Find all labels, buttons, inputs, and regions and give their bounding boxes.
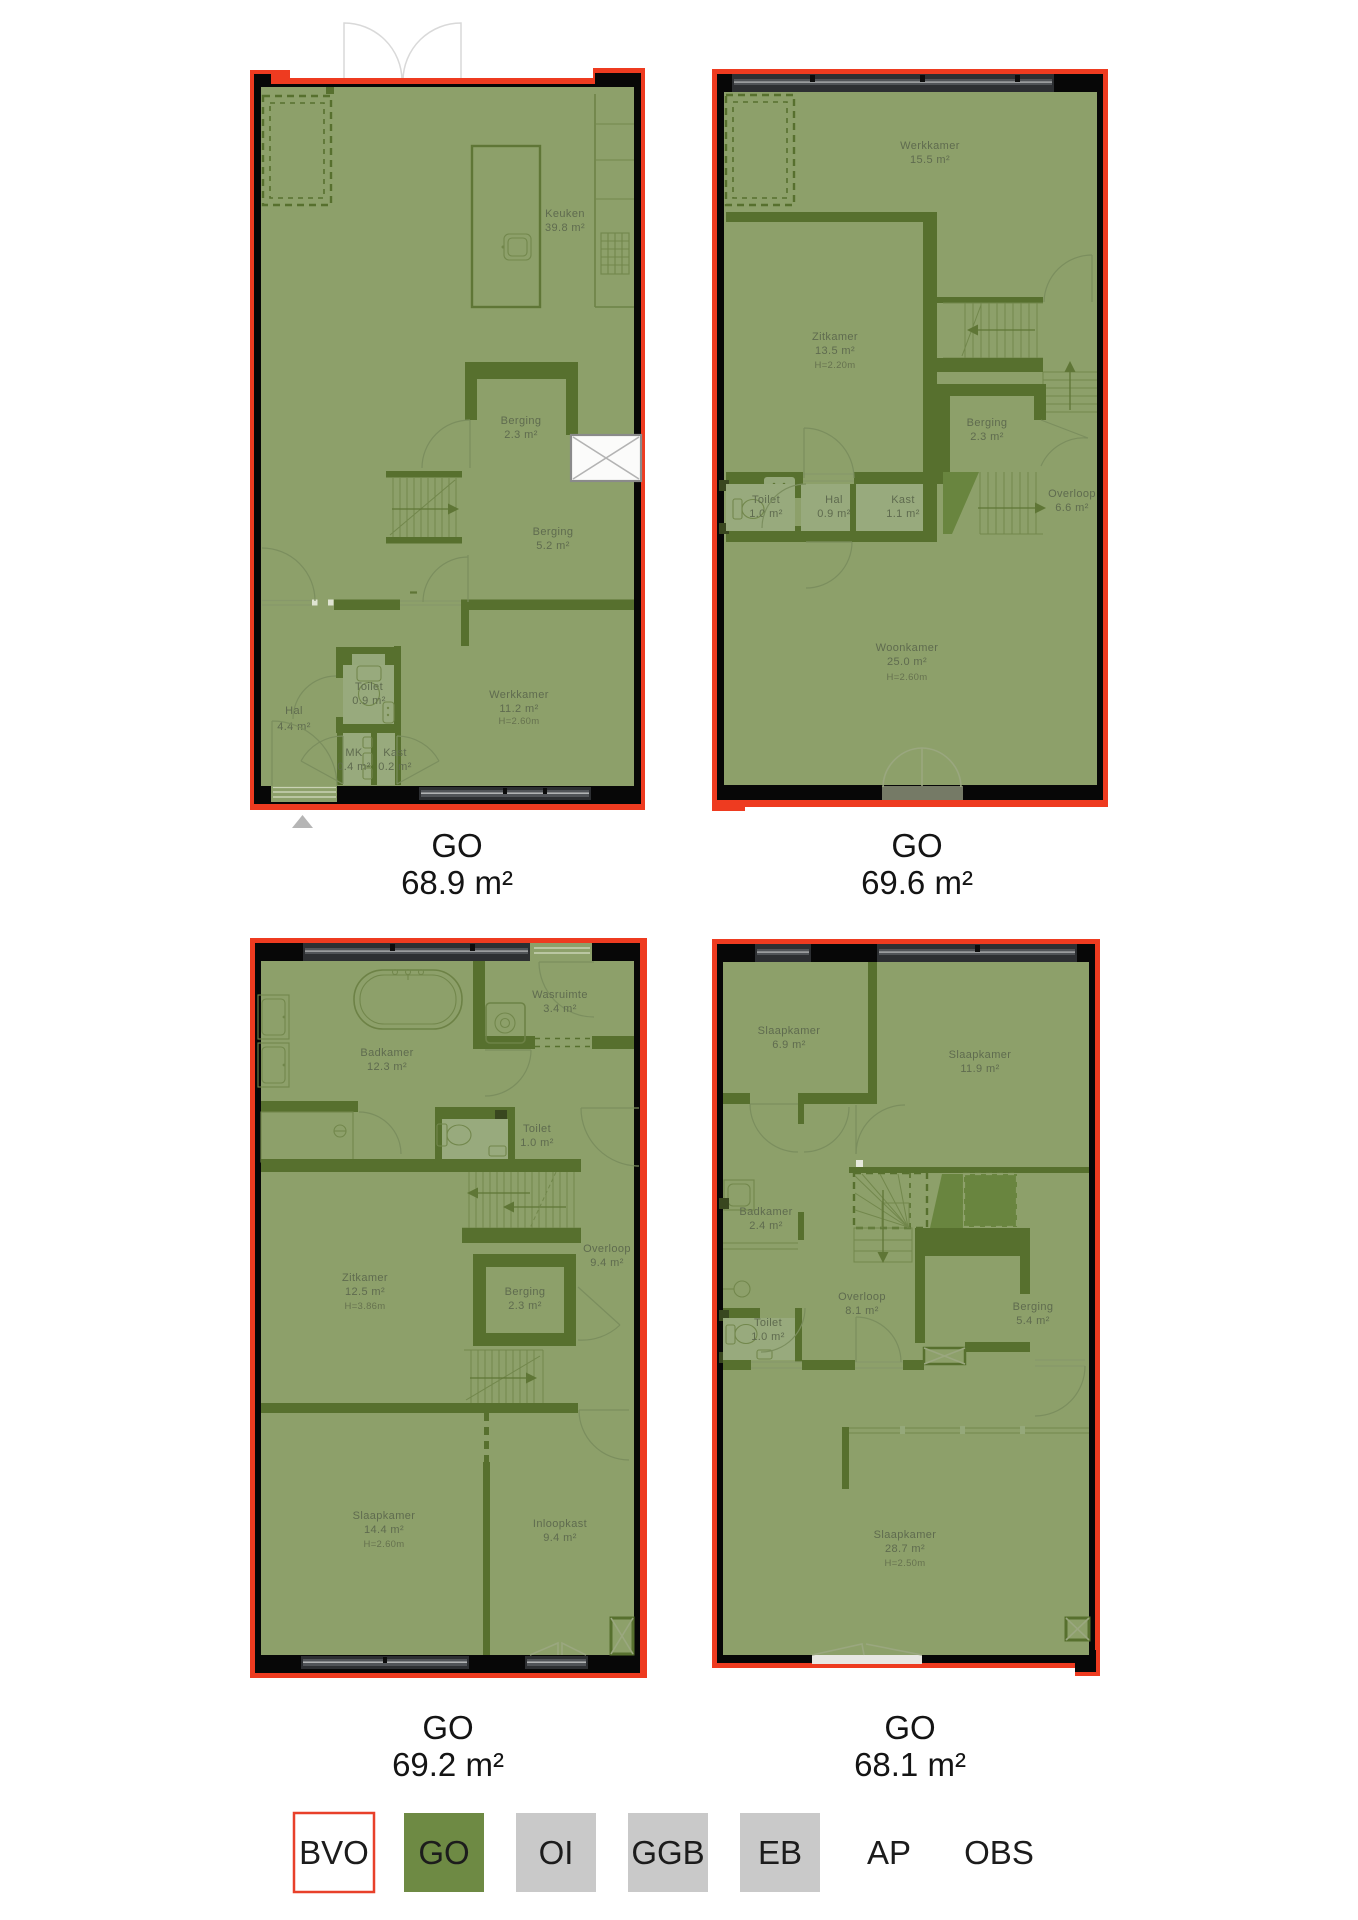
svg-text:Toilet: Toilet: [754, 1317, 782, 1329]
svg-text:39.8 m²: 39.8 m²: [545, 222, 585, 234]
svg-text:GO: GO: [431, 827, 482, 864]
svg-text:Toilet: Toilet: [523, 1123, 551, 1135]
svg-text:11.2 m²: 11.2 m²: [499, 703, 538, 715]
svg-text:Woonkamer: Woonkamer: [876, 642, 939, 654]
svg-text:Berging: Berging: [967, 417, 1008, 429]
svg-text:Berging: Berging: [505, 1286, 546, 1298]
svg-text:OBS: OBS: [964, 1834, 1034, 1871]
svg-text:Overloop: Overloop: [838, 1291, 886, 1303]
svg-text:0.4 m²: 0.4 m²: [337, 761, 371, 773]
svg-text:25.0 m²: 25.0 m²: [887, 656, 927, 668]
svg-text:Badkamer: Badkamer: [360, 1047, 413, 1059]
svg-text:Berging: Berging: [1013, 1301, 1054, 1313]
svg-text:GO: GO: [884, 1709, 935, 1746]
svg-text:12.3 m²: 12.3 m²: [367, 1061, 407, 1073]
svg-text:GO: GO: [418, 1834, 469, 1871]
svg-text:Kast: Kast: [383, 747, 407, 759]
svg-text:68.9 m²: 68.9 m²: [401, 864, 513, 901]
svg-text:2.4 m²: 2.4 m²: [749, 1220, 783, 1232]
svg-text:EB: EB: [758, 1834, 802, 1871]
svg-text:Wasruimte: Wasruimte: [532, 989, 588, 1001]
svg-text:4.4 m²: 4.4 m²: [277, 721, 311, 733]
svg-text:5.2 m²: 5.2 m²: [536, 540, 570, 552]
svg-text:H=3.86m: H=3.86m: [345, 1301, 386, 1312]
svg-text:GGB: GGB: [631, 1834, 704, 1871]
svg-text:6.6 m²: 6.6 m²: [1055, 502, 1089, 514]
svg-text:14.4 m²: 14.4 m²: [364, 1524, 404, 1536]
svg-text:1.0 m²: 1.0 m²: [751, 1331, 785, 1343]
svg-text:3.4 m²: 3.4 m²: [543, 1003, 577, 1015]
svg-text:Zitkamer: Zitkamer: [342, 1272, 388, 1284]
svg-text:Badkamer: Badkamer: [739, 1206, 792, 1218]
svg-text:Slaapkamer: Slaapkamer: [949, 1049, 1012, 1061]
svg-text:AP: AP: [867, 1834, 911, 1871]
svg-text:Inloopkast: Inloopkast: [533, 1518, 587, 1530]
svg-text:H=2.20m: H=2.20m: [815, 360, 856, 371]
svg-text:9.4 m²: 9.4 m²: [543, 1532, 577, 1544]
svg-text:0.2 m²: 0.2 m²: [378, 761, 412, 773]
svg-text:Zitkamer: Zitkamer: [812, 331, 858, 343]
svg-text:69.2 m²: 69.2 m²: [392, 1746, 504, 1783]
svg-text:0.9 m²: 0.9 m²: [352, 695, 386, 707]
svg-text:H=2.50m: H=2.50m: [885, 1558, 926, 1569]
svg-text:2.3 m²: 2.3 m²: [508, 1300, 542, 1312]
svg-text:Berging: Berging: [501, 415, 542, 427]
svg-text:Slaapkamer: Slaapkamer: [353, 1510, 416, 1522]
svg-text:Slaapkamer: Slaapkamer: [758, 1025, 821, 1037]
svg-text:Hal: Hal: [825, 494, 843, 506]
svg-text:68.1 m²: 68.1 m²: [854, 1746, 966, 1783]
svg-text:1.1 m²: 1.1 m²: [886, 508, 920, 520]
svg-text:GO: GO: [891, 827, 942, 864]
svg-text:H=2.60m: H=2.60m: [364, 1539, 405, 1550]
svg-text:11.9 m²: 11.9 m²: [960, 1063, 999, 1075]
svg-text:2.3 m²: 2.3 m²: [970, 431, 1004, 443]
svg-text:15.5 m²: 15.5 m²: [910, 154, 950, 166]
svg-text:H=2.60m: H=2.60m: [887, 672, 928, 683]
svg-text:69.6 m²: 69.6 m²: [861, 864, 973, 901]
svg-text:Berging: Berging: [533, 526, 574, 538]
svg-text:Overloop: Overloop: [583, 1243, 631, 1255]
svg-text:MK: MK: [345, 747, 363, 759]
svg-text:H=2.60m: H=2.60m: [499, 716, 540, 727]
svg-text:0.9 m²: 0.9 m²: [817, 508, 851, 520]
svg-text:Werkkamer: Werkkamer: [900, 140, 960, 152]
svg-text:9.4 m²: 9.4 m²: [590, 1257, 624, 1269]
svg-text:1.0 m²: 1.0 m²: [520, 1137, 554, 1149]
svg-text:13.5 m²: 13.5 m²: [815, 345, 855, 357]
svg-text:6.9 m²: 6.9 m²: [772, 1039, 806, 1051]
svg-text:2.3 m²: 2.3 m²: [504, 429, 538, 441]
svg-text:Werkkamer: Werkkamer: [489, 689, 549, 701]
svg-text:Kast: Kast: [891, 494, 915, 506]
svg-text:BVO: BVO: [299, 1834, 369, 1871]
svg-text:Overloop: Overloop: [1048, 488, 1096, 500]
svg-text:Toilet: Toilet: [355, 681, 383, 693]
svg-text:5.4 m²: 5.4 m²: [1016, 1315, 1050, 1327]
svg-text:12.5 m²: 12.5 m²: [345, 1286, 385, 1298]
svg-text:Hal: Hal: [285, 705, 303, 717]
svg-text:Keuken: Keuken: [545, 208, 585, 220]
svg-text:28.7 m²: 28.7 m²: [885, 1543, 925, 1555]
svg-text:OI: OI: [539, 1834, 574, 1871]
svg-text:8.1 m²: 8.1 m²: [845, 1305, 879, 1317]
svg-text:GO: GO: [422, 1709, 473, 1746]
svg-text:Slaapkamer: Slaapkamer: [874, 1529, 937, 1541]
